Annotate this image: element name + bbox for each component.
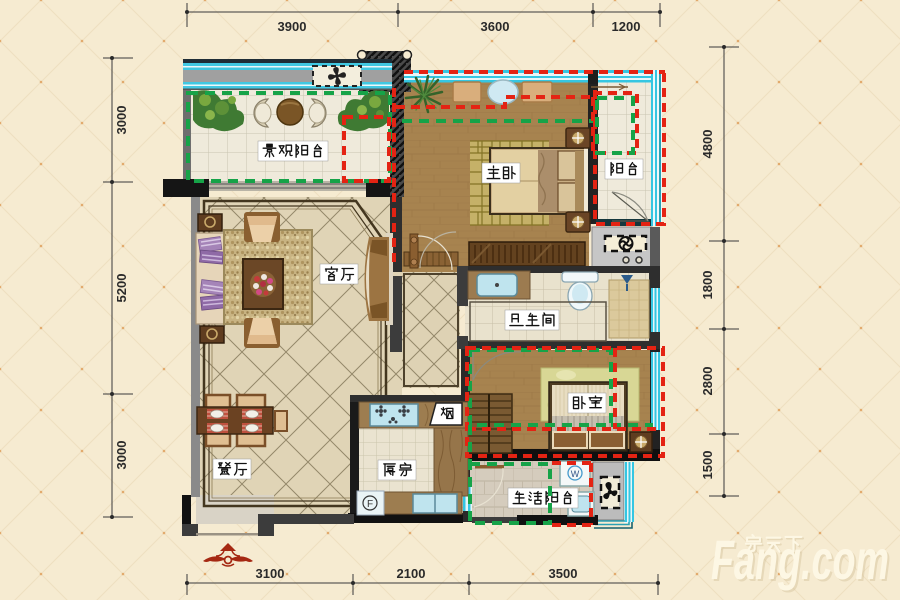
svg-text:F: F xyxy=(367,499,373,510)
svg-text:3100: 3100 xyxy=(256,566,285,581)
svg-text:Fang.com: Fang.com xyxy=(711,528,889,591)
svg-text:2800: 2800 xyxy=(700,367,715,396)
svg-text:W: W xyxy=(571,469,580,479)
svg-text:4800: 4800 xyxy=(700,130,715,159)
svg-text:3000: 3000 xyxy=(114,106,129,135)
svg-text:1800: 1800 xyxy=(700,271,715,300)
svg-text:5200: 5200 xyxy=(114,274,129,303)
svg-text:2100: 2100 xyxy=(397,566,426,581)
svg-text:3600: 3600 xyxy=(481,19,510,34)
svg-text:3500: 3500 xyxy=(549,566,578,581)
svg-text:1200: 1200 xyxy=(612,19,641,34)
svg-text:1500: 1500 xyxy=(700,451,715,480)
svg-text:3000: 3000 xyxy=(114,441,129,470)
svg-text:3900: 3900 xyxy=(278,19,307,34)
